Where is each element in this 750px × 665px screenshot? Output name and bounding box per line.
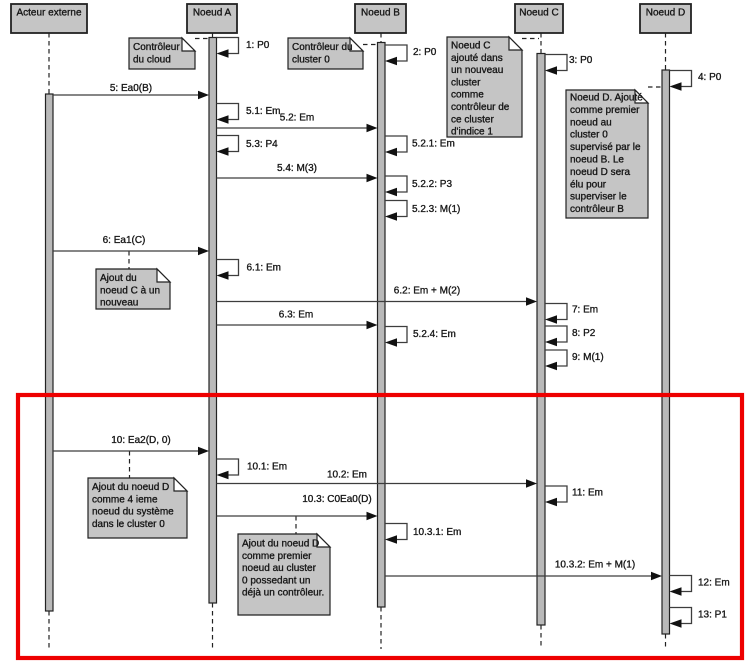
svg-text:10.3.2: Em + M(1): 10.3.2: Em + M(1) <box>555 560 635 571</box>
svg-text:5.1: Em: 5.1: Em <box>246 106 280 117</box>
svg-text:Noeud D: Noeud D <box>646 8 685 19</box>
svg-text:1: P0: 1: P0 <box>246 40 270 51</box>
svg-text:6: Ea1(C): 6: Ea1(C) <box>103 235 146 246</box>
svg-text:0 possedant un: 0 possedant un <box>242 575 310 586</box>
svg-text:Ajout du noeud D: Ajout du noeud D <box>92 482 169 493</box>
svg-text:4: P0: 4: P0 <box>698 72 722 83</box>
svg-text:5.2.1: Em: 5.2.1: Em <box>412 139 455 150</box>
svg-text:5: Ea0(B): 5: Ea0(B) <box>110 83 152 94</box>
svg-text:13: P1: 13: P1 <box>698 610 727 621</box>
svg-text:un nouveau: un nouveau <box>451 65 503 76</box>
svg-text:contrôleur de: contrôleur de <box>451 102 510 113</box>
svg-text:comme 4 ieme: comme 4 ieme <box>92 494 158 505</box>
svg-text:comme premier: comme premier <box>242 551 312 562</box>
svg-text:Ajout du noeud D: Ajout du noeud D <box>242 539 319 550</box>
svg-text:10.3: C0Ea0(D): 10.3: C0Ea0(D) <box>302 494 371 505</box>
svg-text:élu pour: élu pour <box>570 179 607 190</box>
svg-text:5.2: Em: 5.2: Em <box>280 113 314 124</box>
svg-text:5.3: P4: 5.3: P4 <box>246 139 278 150</box>
svg-text:comme: comme <box>451 90 484 101</box>
svg-text:noeud au cluster: noeud au cluster <box>242 563 317 574</box>
svg-text:Noeud C: Noeud C <box>451 41 490 52</box>
svg-text:noeud du système: noeud du système <box>92 507 174 518</box>
svg-text:cluster: cluster <box>451 77 481 88</box>
svg-text:12: Em: 12: Em <box>698 578 730 589</box>
svg-text:noeud D sera: noeud D sera <box>570 167 630 178</box>
svg-text:dans le cluster 0: dans le cluster 0 <box>92 519 165 530</box>
svg-text:6.3: Em: 6.3: Em <box>279 310 313 321</box>
svg-text:5.2.2: P3: 5.2.2: P3 <box>412 179 452 190</box>
svg-text:11: Em: 11: Em <box>572 488 603 499</box>
svg-text:3: P0: 3: P0 <box>569 55 593 66</box>
svg-text:Contrôleur du: Contrôleur du <box>292 42 353 53</box>
svg-text:d'indice 1: d'indice 1 <box>451 127 493 138</box>
svg-text:6.1: Em: 6.1: Em <box>247 263 281 274</box>
svg-text:contrôleur B: contrôleur B <box>570 204 624 215</box>
svg-text:5.2.3: M(1): 5.2.3: M(1) <box>412 204 460 215</box>
svg-text:10.3.1: Em: 10.3.1: Em <box>413 527 461 538</box>
svg-text:ajouté dans: ajouté dans <box>451 53 503 64</box>
svg-text:Noeud C: Noeud C <box>519 8 558 19</box>
svg-text:Noeud D. Ajouté: Noeud D. Ajouté <box>570 93 643 104</box>
svg-text:cluster 0: cluster 0 <box>570 130 608 141</box>
svg-text:6.2: Em + M(2): 6.2: Em + M(2) <box>394 286 460 297</box>
svg-text:cluster 0: cluster 0 <box>292 54 330 65</box>
svg-text:2: P0: 2: P0 <box>413 47 437 58</box>
svg-text:noeud C à un: noeud C à un <box>100 285 160 296</box>
svg-text:supervisé par le: supervisé par le <box>570 142 641 153</box>
svg-text:du cloud: du cloud <box>133 54 171 65</box>
svg-text:5.2.4: Em: 5.2.4: Em <box>413 329 456 340</box>
svg-text:Noeud B: Noeud B <box>361 8 400 19</box>
svg-text:comme premier: comme premier <box>570 105 640 116</box>
svg-text:Noeud A: Noeud A <box>193 8 232 19</box>
svg-text:9: M(1): 9: M(1) <box>572 352 604 363</box>
svg-text:10: Ea2(D, 0): 10: Ea2(D, 0) <box>111 435 170 446</box>
svg-text:Contrôleur: Contrôleur <box>133 42 180 53</box>
svg-text:7: Em: 7: Em <box>572 305 598 316</box>
svg-text:5.4: M(3): 5.4: M(3) <box>277 163 317 174</box>
svg-text:noeud B. Le: noeud B. Le <box>570 155 624 166</box>
svg-text:Ajout du: Ajout du <box>100 273 137 284</box>
svg-text:ce cluster: ce cluster <box>451 114 494 125</box>
svg-text:10.1: Em: 10.1: Em <box>247 462 287 473</box>
svg-text:10.2: Em: 10.2: Em <box>327 470 367 481</box>
svg-text:Acteur externe: Acteur externe <box>16 8 81 19</box>
svg-text:déjà un contrôleur.: déjà un contrôleur. <box>242 588 324 599</box>
svg-text:nouveau: nouveau <box>100 298 138 309</box>
svg-text:superviser le: superviser le <box>570 192 627 203</box>
svg-text:noeud au: noeud au <box>570 117 612 128</box>
svg-text:8: P2: 8: P2 <box>572 328 596 339</box>
